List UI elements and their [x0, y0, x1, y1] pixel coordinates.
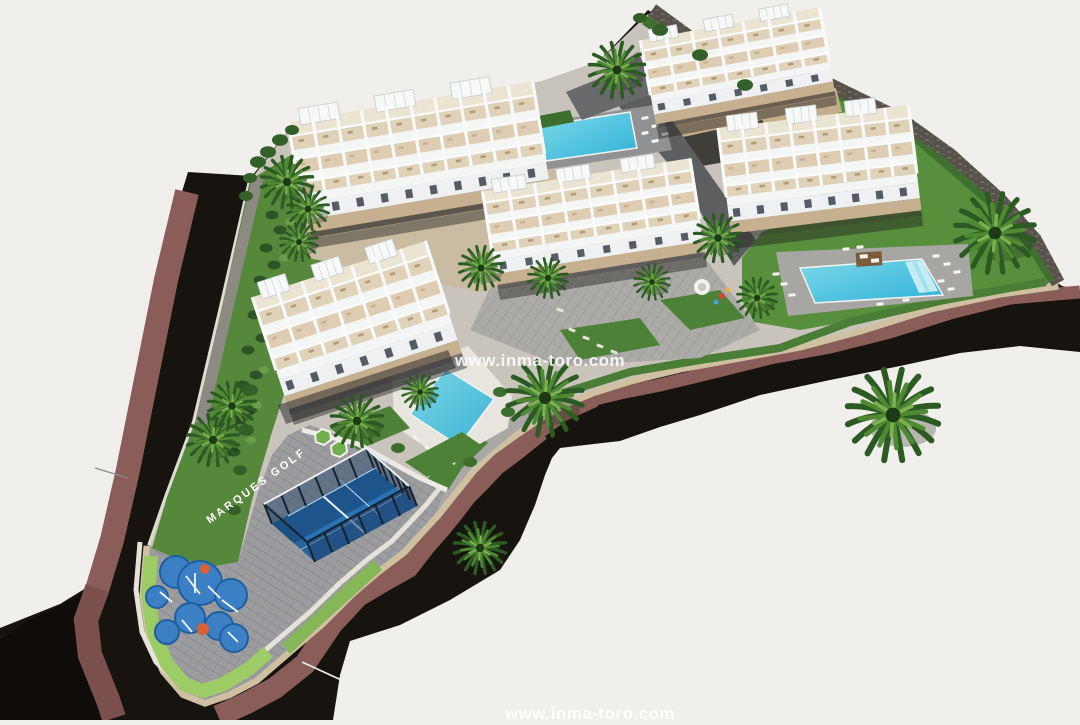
svg-text:www.inma-toro.com: www.inma-toro.com: [504, 704, 675, 720]
svg-text:www.inma-toro.com: www.inma-toro.com: [454, 351, 625, 370]
